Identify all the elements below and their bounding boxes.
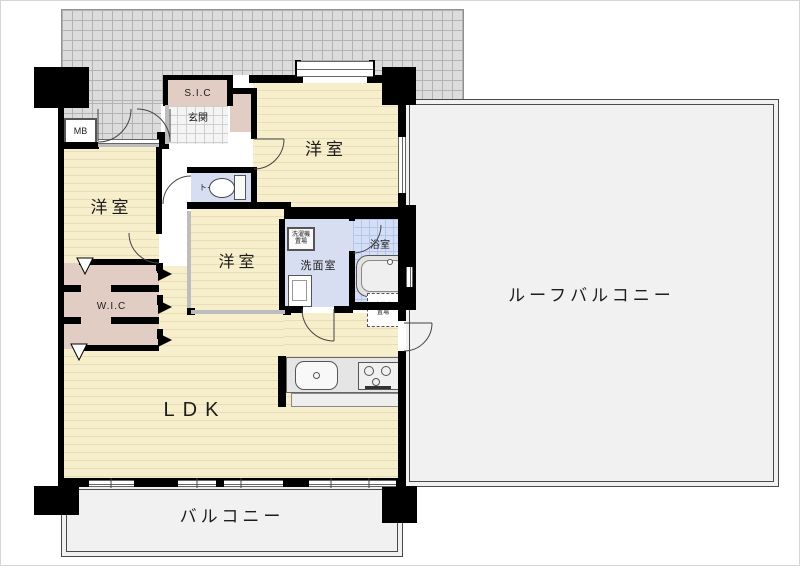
window xyxy=(178,480,216,487)
balcony-label: バルコニー xyxy=(62,499,402,529)
room-bedroom-left: 洋室 xyxy=(64,144,159,266)
toilet-tank-icon xyxy=(234,175,246,200)
wall xyxy=(382,67,416,105)
wall xyxy=(79,345,159,351)
wall xyxy=(134,478,178,487)
wall xyxy=(405,205,416,309)
sliding-door-track xyxy=(191,310,285,314)
window xyxy=(309,480,396,487)
washer-space-line1: 洗濯機 xyxy=(289,232,313,239)
wall xyxy=(157,263,163,273)
fridge-space: 冷蔵庫 置場 xyxy=(367,293,399,327)
bedroom-right-label: 洋室 xyxy=(305,135,347,160)
wall xyxy=(34,486,79,515)
fridge-space-line2: 置場 xyxy=(368,310,398,317)
window xyxy=(406,267,413,287)
sic-label: S.I.C xyxy=(184,88,211,99)
wall xyxy=(58,104,64,486)
wall xyxy=(278,356,286,407)
wall xyxy=(34,67,89,108)
balcony: バルコニー xyxy=(61,484,403,557)
genkan-label: 玄関 xyxy=(168,109,228,124)
bedroom-left-label: 洋室 xyxy=(91,193,133,218)
wall xyxy=(61,142,99,149)
bath-faucet xyxy=(387,259,393,265)
wall xyxy=(157,329,163,339)
sliding-door-track xyxy=(98,144,159,147)
roof-balcony: ルーフバルコニー xyxy=(404,99,779,487)
bath-label: 浴室 xyxy=(357,237,403,249)
ldk-label: LDK xyxy=(147,395,243,425)
sliding-door-track xyxy=(187,211,191,308)
wall xyxy=(349,302,416,310)
stove-burner xyxy=(364,366,374,376)
wall xyxy=(61,285,81,292)
wall xyxy=(187,202,291,209)
room-wic: W.I.C xyxy=(64,263,159,349)
room-sic: S.I.C xyxy=(168,80,228,106)
washer-space-line2: 置場 xyxy=(289,239,313,246)
wall xyxy=(79,259,159,265)
wall xyxy=(111,317,159,324)
wall xyxy=(349,251,355,306)
wall xyxy=(279,219,285,311)
stove-burner xyxy=(372,378,380,386)
stove-burner xyxy=(381,366,391,376)
roof-balcony-door-gap xyxy=(398,321,406,351)
mb-label: MB xyxy=(66,120,95,142)
toilet-bowl-icon xyxy=(209,178,235,198)
stove-grill xyxy=(365,386,391,389)
window xyxy=(89,480,134,487)
roof-balcony-label: ルーフバルコニー xyxy=(405,280,778,306)
meter-box: MB xyxy=(64,118,97,144)
room-bedroom-center: 洋室 xyxy=(191,209,286,310)
kitchen-stove-icon xyxy=(358,362,399,390)
wall xyxy=(163,75,168,106)
wall xyxy=(156,142,162,234)
sink-drain xyxy=(313,372,320,379)
washroom-label: 洗面室 xyxy=(284,257,353,273)
bedroom-center-label: 洋室 xyxy=(218,248,258,272)
wall xyxy=(382,486,417,523)
sliding-door-track xyxy=(165,105,169,144)
washbasin-icon xyxy=(288,275,312,307)
wall xyxy=(283,478,309,487)
window xyxy=(398,137,406,193)
wall xyxy=(187,167,257,173)
wall xyxy=(163,75,232,80)
kitchen-counter-front xyxy=(291,393,399,407)
floor-plan: ルーフバルコニー バルコニー 洋室 W.I.C LDK 洋室 洋室 S.I.C … xyxy=(0,0,800,566)
wall xyxy=(349,211,355,221)
room-bedroom-right: 洋室 xyxy=(253,83,399,211)
washer-space: 洗濯機 置場 xyxy=(287,227,315,251)
washbasin-bowl xyxy=(292,280,307,301)
window xyxy=(224,480,283,487)
room-toilet: トイレ xyxy=(191,172,253,203)
kitchen-sink-icon xyxy=(295,361,338,390)
window xyxy=(297,61,373,77)
closet-bedroom-right xyxy=(230,94,253,132)
room-washroom: 洗面室 洗濯機 置場 xyxy=(284,219,353,307)
wall xyxy=(111,285,159,292)
wic-label: W.I.C xyxy=(97,301,126,312)
room-genkan: 玄関 xyxy=(168,106,228,144)
wall xyxy=(251,88,257,139)
wall xyxy=(157,295,163,305)
wall xyxy=(61,317,81,324)
